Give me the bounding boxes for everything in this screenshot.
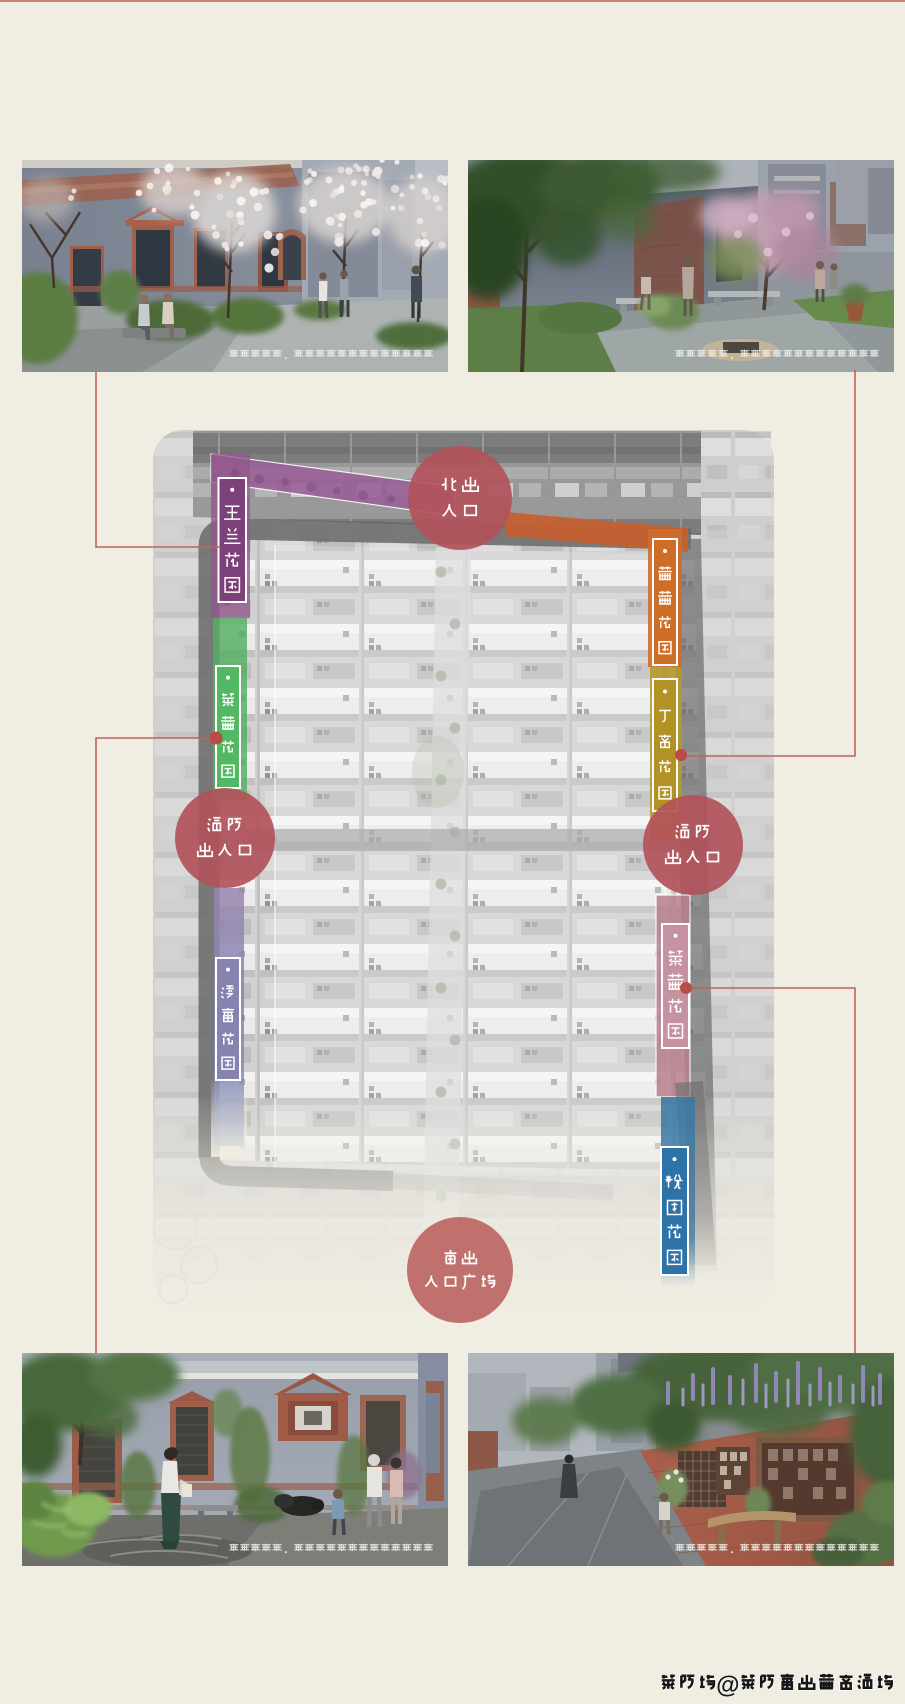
svg-text:@: @ bbox=[716, 1672, 739, 1699]
